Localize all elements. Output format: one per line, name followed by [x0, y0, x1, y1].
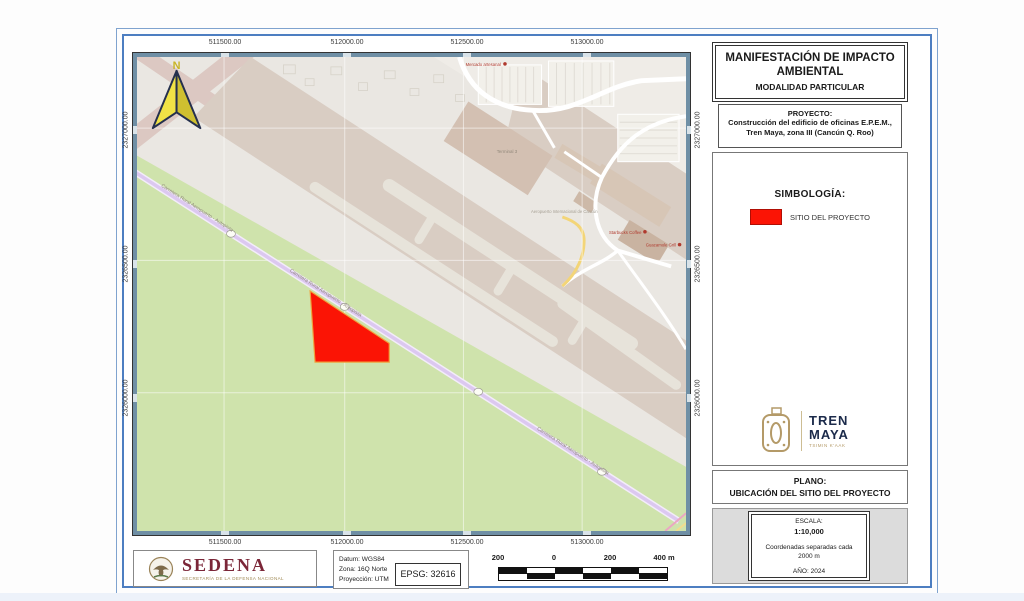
symbology-heading: SIMBOLOGÍA: [713, 189, 907, 200]
scalebar [498, 567, 668, 581]
tren-maya-glyph-icon [760, 407, 794, 455]
project-site-swatch [750, 209, 782, 225]
grid-tick [133, 260, 137, 268]
datum-line2: Zona: 16Q Norte [339, 565, 389, 575]
scalebar-label-0: 200 [492, 553, 505, 562]
grid-tick [687, 260, 691, 268]
x-coordinate-label: 511500.00 [209, 39, 242, 46]
grid-tick [343, 53, 351, 57]
title-block: MANIFESTACIÓN DE IMPACTO AMBIENTAL MODAL… [712, 42, 908, 102]
x-coordinate-label: 512500.00 [450, 539, 483, 546]
legend-row: SITIO DEL PROYECTO [713, 209, 907, 225]
y-coordinate-label: 2326500.00 [695, 246, 702, 283]
scalebar-label-3: 400 m [653, 553, 674, 562]
map-sheet-page: Carretera Rural Aeropuerto - Autopista C… [0, 0, 1024, 601]
grid-tick [133, 394, 137, 402]
page-bottom-haze [0, 593, 1024, 601]
datum-lines: Datum: WGS84 Zona: 16Q Norte Proyección:… [339, 555, 389, 584]
title-block-inner-border [715, 45, 905, 99]
tren-maya-tagline: TSIMIN K'AAK [809, 443, 849, 448]
sedena-eagle-icon [148, 556, 174, 582]
grid-tick [463, 531, 471, 535]
datum-line3: Proyección: UTM [339, 575, 389, 585]
y-coordinate-label: 2326000.00 [123, 380, 130, 417]
x-coordinate-label: 513000.00 [570, 539, 603, 546]
y-coordinate-label: 2327000.00 [123, 112, 130, 149]
tren-maya-wordmark-line2: MAYA [809, 428, 849, 441]
terminal-label: Terminal 3 [497, 149, 518, 154]
grid-tick [221, 531, 229, 535]
x-coordinate-label: 512000.00 [330, 539, 363, 546]
airport-label: Aeropuerto Internacional de Cancún [531, 209, 598, 214]
scale-block-inner-border [751, 514, 867, 578]
plano-title: UBICACIÓN DEL SITIO DEL PROYECTO [713, 488, 907, 500]
scalebar-label-1: 0 [552, 553, 556, 562]
project-block: PROYECTO: Construcción del edificio de o… [718, 104, 902, 148]
grid-tick [687, 126, 691, 134]
tren-maya-logo: TREN MAYA TSIMIN K'AAK [760, 405, 870, 457]
poi-label-2: Guacamole Grill [646, 243, 676, 248]
x-coordinate-label: 512500.00 [450, 39, 483, 46]
scalebar-label-2: 200 [604, 553, 617, 562]
x-coordinate-label: 512000.00 [330, 39, 363, 46]
project-site-legend-label: SITIO DEL PROYECTO [790, 213, 870, 222]
grid-tick [687, 394, 691, 402]
y-coordinate-label: 2326000.00 [695, 380, 702, 417]
x-coordinate-label: 513000.00 [570, 39, 603, 46]
plano-label: PLANO: [713, 476, 907, 488]
scalebar-top-row [499, 568, 667, 573]
sedena-block: SEDENA SECRETARÍA DE LA DEFENSA NACIONAL [133, 550, 317, 587]
x-coordinate-label: 511500.00 [209, 539, 242, 546]
poi-marker-icon [678, 243, 682, 247]
grid-tick [343, 531, 351, 535]
grid-tick [583, 531, 591, 535]
datum-line1: Datum: WGS84 [339, 555, 389, 565]
project-label: PROYECTO: [719, 109, 901, 118]
project-name-line2: Tren Maya, zona III (Cancún Q. Roo) [719, 128, 901, 138]
tren-maya-wordmark-line1: TREN [809, 414, 849, 427]
poi-label-3: Mercado artesanal [466, 62, 501, 67]
scale-block: ESCALA: 1:10,000 Coordenadas separadas c… [748, 511, 870, 581]
map-frame: Carretera Rural Aeropuerto - Autopista C… [132, 52, 691, 536]
grid-tick [221, 53, 229, 57]
plano-block: PLANO: UBICACIÓN DEL SITIO DEL PROYECTO [712, 470, 908, 504]
grid-tick [133, 126, 137, 134]
logo-divider [801, 411, 802, 451]
poi-marker-icon [643, 230, 647, 234]
grid-tick [583, 53, 591, 57]
epsg-badge: EPSG: 32616 [395, 563, 461, 586]
project-name-line1: Construcción del edificio de oficinas E.… [719, 118, 901, 128]
scalebar-bottom-row [499, 573, 667, 579]
poi-marker-icon [503, 62, 507, 66]
map-canvas: Carretera Rural Aeropuerto - Autopista C… [137, 57, 686, 531]
y-coordinate-label: 2326500.00 [123, 246, 130, 283]
y-coordinate-label: 2327000.00 [695, 112, 702, 149]
poi-label-1: Starbucks Coffee [609, 230, 642, 235]
sedena-wordmark: SEDENA [182, 556, 284, 574]
sedena-subtitle: SECRETARÍA DE LA DEFENSA NACIONAL [182, 576, 284, 581]
grid-tick [463, 53, 471, 57]
